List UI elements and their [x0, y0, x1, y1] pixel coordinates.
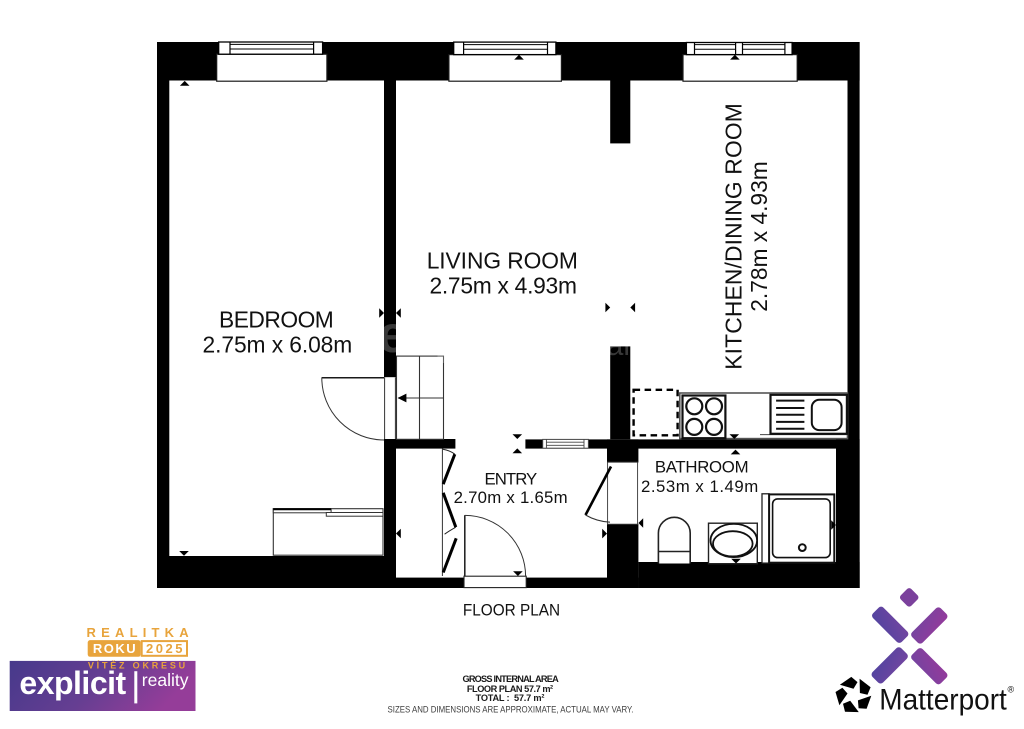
- svg-text:2.75m x 6.08m: 2.75m x 6.08m: [203, 331, 353, 357]
- svg-text:BATHROOM: BATHROOM: [655, 458, 749, 477]
- svg-text:2.78m x 4.93m: 2.78m x 4.93m: [746, 161, 772, 312]
- svg-text:ROKU: ROKU: [93, 641, 137, 656]
- svg-text:explicit: explicit: [378, 306, 550, 364]
- svg-text:SIZES AND DIMENSIONS ARE APPRO: SIZES AND DIMENSIONS ARE APPROXIMATE, AC…: [388, 703, 634, 714]
- svg-text:Matterport: Matterport: [879, 683, 1007, 716]
- svg-text:REALITKA: REALITKA: [87, 625, 194, 640]
- svg-text:2.70m x 1.65m: 2.70m x 1.65m: [454, 488, 568, 507]
- svg-text:FLOOR PLAN: FLOOR PLAN: [463, 600, 560, 619]
- svg-text:GROSS INTERNAL AREA: GROSS INTERNAL AREA: [462, 674, 559, 684]
- svg-text:reality: reality: [580, 329, 660, 362]
- svg-text:LIVING ROOM: LIVING ROOM: [427, 248, 578, 274]
- svg-text:®: ®: [1008, 685, 1015, 695]
- svg-text:TOTAL : 57.7 m²: TOTAL : 57.7 m²: [476, 693, 545, 703]
- svg-text:KITCHEN/DINING ROOM: KITCHEN/DINING ROOM: [720, 103, 746, 370]
- svg-text:BEDROOM: BEDROOM: [219, 307, 334, 333]
- svg-text:reality: reality: [142, 670, 189, 690]
- svg-text:ENTRY: ENTRY: [485, 469, 538, 488]
- svg-text:2025: 2025: [146, 641, 185, 656]
- svg-text:2.75m x 4.93m: 2.75m x 4.93m: [429, 273, 577, 299]
- svg-text:2.53m x 1.49m: 2.53m x 1.49m: [641, 477, 758, 496]
- svg-text:explicit: explicit: [19, 665, 126, 701]
